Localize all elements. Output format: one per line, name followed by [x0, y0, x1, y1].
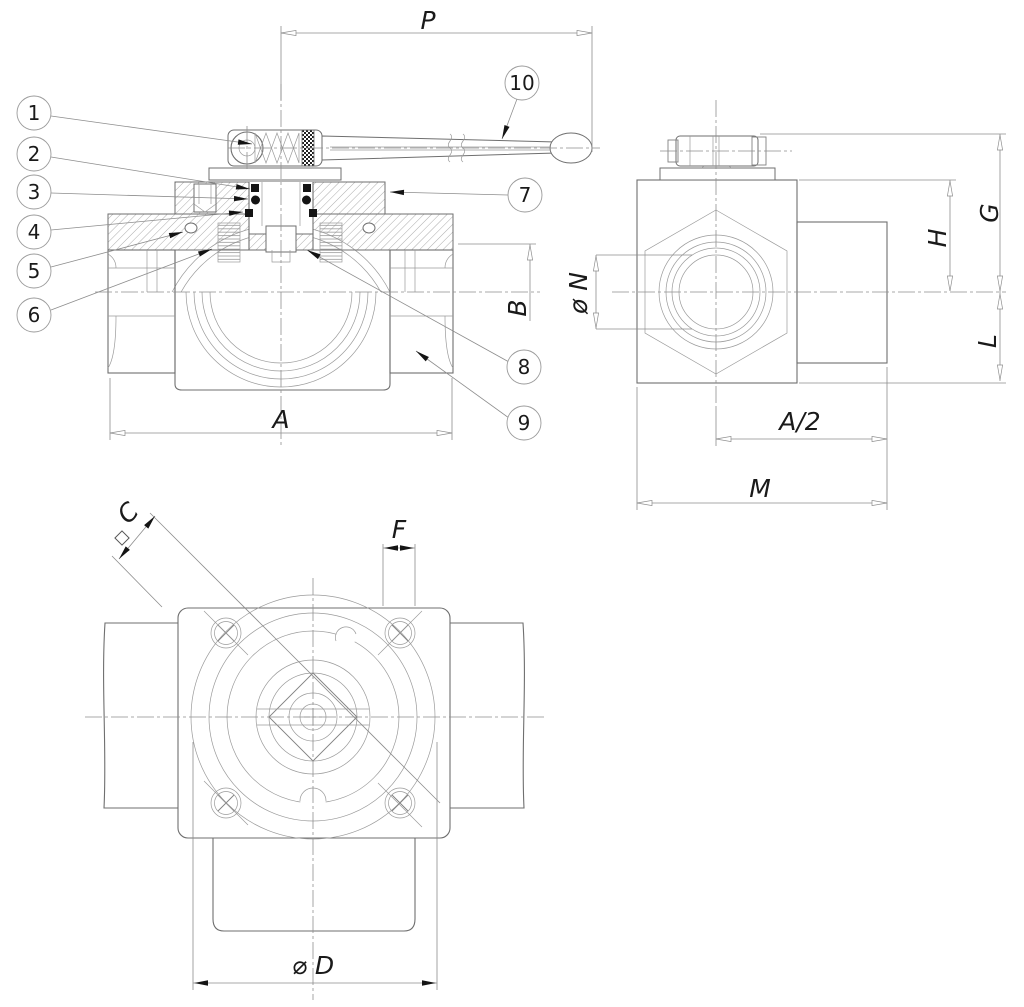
- seal-square-top-right: [303, 184, 311, 192]
- port-left-bore-lines: [108, 250, 175, 316]
- oring-left: [251, 196, 260, 205]
- dim-arrow: [997, 135, 1002, 150]
- top-centerlines: [85, 578, 545, 1000]
- balloon-number: 4: [28, 220, 41, 244]
- top-view: C F ⌀ D: [85, 496, 545, 1000]
- balloon-2: 2: [17, 137, 250, 192]
- dim-arrow: [872, 500, 887, 505]
- dim-p-extensions: [281, 26, 592, 152]
- dim-arrow: [400, 545, 414, 550]
- dim-arrow: [281, 30, 296, 35]
- dim-h: H: [799, 180, 956, 291]
- side-centerlines: [612, 100, 1006, 406]
- balloon-number: 2: [28, 142, 41, 166]
- dim-g-label: G: [975, 203, 1004, 222]
- dim-p: P: [281, 6, 592, 152]
- handle-assembly: [209, 130, 592, 180]
- port-right-bore-lines: [390, 250, 453, 316]
- gland-notch-cut2: [336, 627, 356, 647]
- dim-phi-n-label: ø N: [564, 272, 593, 315]
- side-stop-plate: [660, 168, 775, 180]
- dim-arrow: [194, 980, 208, 985]
- seal-square-top-left: [251, 184, 259, 192]
- leader-arrow: [390, 189, 404, 195]
- dim-c: C: [112, 496, 158, 561]
- port-stub-right: [450, 623, 524, 808]
- dim-l-label: L: [973, 334, 1002, 348]
- flange-hole-left: [185, 223, 197, 233]
- square-extension-line-a: [150, 513, 440, 803]
- port-stub-left: [104, 623, 178, 808]
- balloon-number: 1: [28, 101, 41, 125]
- front-section-view: P A B 1 2: [17, 6, 600, 469]
- port-right-chamfer: [445, 254, 453, 368]
- bolt-hole-cross: [392, 795, 408, 811]
- seal-square-bottom-left: [245, 209, 253, 217]
- flange-hole-right: [363, 223, 375, 233]
- ball-cap-hatch-right: [296, 234, 313, 250]
- balloon-number: 7: [519, 183, 532, 207]
- dim-b: B: [458, 244, 536, 321]
- dim-arrow: [110, 430, 125, 435]
- dim-arrow: [384, 545, 398, 550]
- dim-arrow: [997, 294, 1002, 309]
- dim-arrow: [593, 313, 598, 328]
- dim-a-half: A/2: [716, 367, 887, 446]
- balloon-number: 9: [518, 411, 531, 435]
- balloon-number: 3: [28, 180, 41, 204]
- dim-arrow: [997, 365, 1002, 380]
- port-left-chamfer: [108, 254, 116, 368]
- seat-thread-right: [320, 223, 342, 262]
- leader-line: [416, 351, 509, 418]
- balloon-number: 6: [28, 303, 41, 327]
- side-stem-assembly: [660, 136, 775, 180]
- balloon-7: 7: [390, 178, 542, 212]
- dim-b-label: B: [503, 299, 532, 316]
- dim-arrow: [997, 276, 1002, 291]
- dim-arrow: [422, 980, 436, 985]
- seal-square-bottom-right: [309, 209, 317, 217]
- dim-f-label: F: [392, 515, 407, 544]
- balloon-10: 10: [499, 66, 539, 140]
- balloon-number: 10: [509, 71, 534, 95]
- balloon-number: 8: [518, 355, 531, 379]
- valve-technical-drawing: P A B 1 2: [0, 0, 1024, 1007]
- balloon-number: 5: [28, 259, 41, 283]
- dim-m-label: M: [749, 474, 771, 503]
- square-symbol: [115, 531, 129, 545]
- leader-line: [51, 116, 252, 144]
- dim-h-label: H: [923, 228, 952, 247]
- seat-thread-left: [218, 223, 240, 262]
- side-port-block: [797, 222, 887, 363]
- stop-plate: [209, 168, 341, 180]
- dim-f-extensions: [383, 544, 415, 606]
- dim-c-label: C: [112, 496, 145, 529]
- dim-arrow: [593, 256, 598, 271]
- dim-arrow: [716, 436, 731, 441]
- dim-arrow: [527, 245, 532, 260]
- port-stub-bottom: [213, 838, 415, 931]
- dim-a-label: A: [270, 405, 289, 434]
- leader-arrow: [414, 349, 429, 362]
- oring-right: [302, 196, 311, 205]
- leader-line: [390, 192, 508, 195]
- dim-arrow: [437, 430, 452, 435]
- dim-arrow: [947, 181, 952, 196]
- ball-cap-hatch-left: [249, 234, 266, 250]
- dim-m: M: [637, 387, 887, 510]
- dim-a-half-label: A/2: [777, 407, 820, 436]
- dim-arrow: [637, 500, 652, 505]
- dim-p-label: P: [420, 6, 436, 35]
- side-view: ø N G H L A/2: [564, 100, 1006, 510]
- drawing-page: P A B 1 2: [0, 0, 1024, 1007]
- dim-arrow: [872, 436, 887, 441]
- balloon-1: 1: [17, 96, 252, 147]
- leader-arrow: [499, 125, 509, 140]
- dim-phi-d-label: ⌀ D: [292, 951, 334, 980]
- dim-arrow: [577, 30, 592, 35]
- dim-l: L: [799, 294, 1006, 383]
- dim-arrow: [947, 276, 952, 291]
- dim-f: F: [383, 515, 415, 606]
- square-extension-line-b: [112, 556, 162, 607]
